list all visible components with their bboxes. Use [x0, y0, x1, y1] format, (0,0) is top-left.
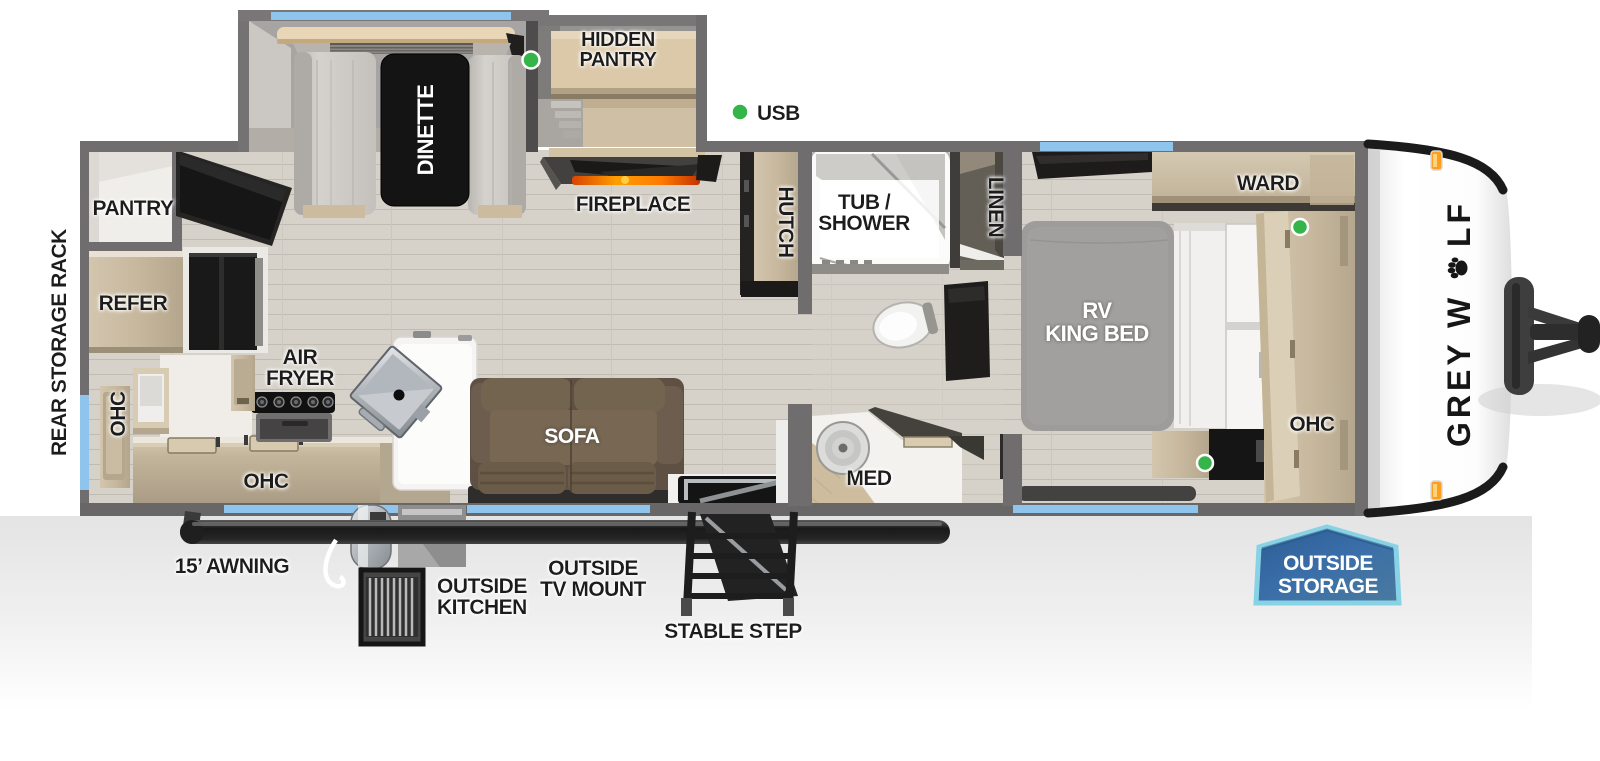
svg-text:DINETTE: DINETTE — [413, 85, 438, 176]
svg-text:KING BED: KING BED — [1045, 321, 1149, 346]
svg-text:RV: RV — [1082, 298, 1112, 323]
svg-text:HUTCH: HUTCH — [774, 187, 797, 258]
svg-text:PANTRY: PANTRY — [580, 49, 658, 71]
svg-text:OHC: OHC — [243, 470, 289, 493]
svg-text:REFER: REFER — [99, 292, 168, 315]
svg-text:HIDDEN: HIDDEN — [581, 29, 655, 51]
svg-text:STORAGE: STORAGE — [1278, 575, 1378, 598]
svg-text:GREY W: GREY W — [1441, 294, 1477, 447]
svg-text:OUTSIDE: OUTSIDE — [1283, 552, 1373, 575]
svg-text:KITCHEN: KITCHEN — [437, 596, 527, 619]
svg-text:OUTSIDE: OUTSIDE — [437, 575, 527, 598]
svg-text:SHOWER: SHOWER — [818, 212, 910, 235]
svg-text:LINEN: LINEN — [984, 177, 1007, 238]
svg-text:LF: LF — [1441, 200, 1477, 247]
svg-text:FIREPLACE: FIREPLACE — [576, 193, 691, 216]
svg-text:OUTSIDE: OUTSIDE — [548, 557, 638, 580]
svg-text:AIR: AIR — [283, 346, 318, 369]
svg-text:STABLE STEP: STABLE STEP — [664, 620, 802, 643]
svg-text:USB: USB — [757, 102, 800, 125]
svg-text:FRYER: FRYER — [266, 367, 334, 390]
svg-text:OHC: OHC — [1289, 413, 1335, 436]
svg-text:SOFA: SOFA — [544, 425, 600, 448]
svg-text:OHC: OHC — [107, 391, 130, 437]
svg-text:TUB /: TUB / — [838, 191, 891, 214]
svg-text:15’ AWNING: 15’ AWNING — [175, 555, 290, 578]
svg-text:WARD: WARD — [1237, 172, 1299, 195]
svg-text:TV MOUNT: TV MOUNT — [540, 578, 646, 601]
svg-text:MED: MED — [846, 467, 892, 490]
svg-text:REAR STORAGE RACK: REAR STORAGE RACK — [48, 229, 71, 456]
svg-text:PANTRY: PANTRY — [93, 197, 174, 220]
